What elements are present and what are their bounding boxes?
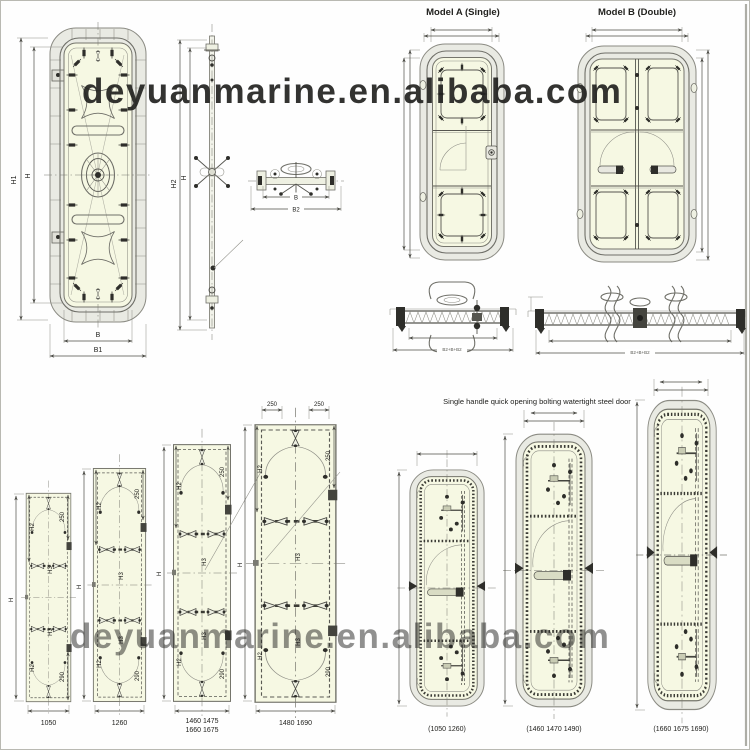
model-b-drawing: Model B (Double) bbox=[577, 7, 710, 262]
dim-h3-door2: H3 bbox=[119, 572, 125, 580]
dim-label-plan-b2: B2 bbox=[292, 208, 300, 214]
dim-h2-door2: H2 bbox=[97, 502, 103, 510]
model-b-title: Model B (Double) bbox=[598, 7, 676, 18]
width-label-qdoor1: (1050 1260) bbox=[428, 726, 466, 733]
width-label-door1: 1050 bbox=[41, 720, 57, 727]
section-double-dim-label: B2+B+B2 bbox=[630, 350, 650, 355]
size-door-1260 bbox=[87, 454, 151, 715]
dim-h-door2: H bbox=[77, 585, 83, 589]
dim-h2b-door1: H2 bbox=[30, 664, 36, 672]
dim-h3-door4: H3 bbox=[296, 553, 302, 561]
dim-250-door2: 250 bbox=[135, 488, 141, 499]
dim-h-door4: H bbox=[238, 563, 244, 567]
catalog-image: H1 H B B1 H2 H bbox=[0, 0, 750, 750]
dim-250-door4: 250 bbox=[326, 450, 332, 461]
size-door-1460 bbox=[167, 429, 237, 716]
dim-290-door3: 290 bbox=[220, 668, 226, 679]
quick-door-1 bbox=[397, 459, 496, 716]
dim-top-250a: 250 bbox=[267, 402, 278, 408]
watermark-bottom: deyuanmarine.en.alibaba.com bbox=[70, 617, 610, 656]
dim-label-plan-b: B bbox=[294, 196, 298, 202]
section-double-drawing: B2+B+B2 bbox=[528, 286, 746, 356]
dim-h2-door4: H2 bbox=[258, 465, 264, 473]
dim-290-door4: 290 bbox=[326, 666, 332, 677]
section-single-drawing: B2+B+B2 bbox=[390, 282, 516, 353]
dim-h3-door3: H3 bbox=[202, 558, 208, 566]
dim-h2b-door3: H2 bbox=[177, 658, 183, 666]
dim-label-h-side: H bbox=[181, 175, 188, 180]
quick-open-drawings: Single handle quick opening bolting wate… bbox=[397, 379, 728, 733]
dim-h-door3: H bbox=[157, 572, 163, 576]
size-chart-drawings: H H2 H2 H3 H3 250 290 H H2 H2 H3 H3 250 … bbox=[9, 402, 345, 734]
dim-250-door3: 250 bbox=[220, 466, 226, 477]
dim-h2-door3: H2 bbox=[177, 482, 183, 490]
dim-290-door2: 290 bbox=[135, 670, 141, 681]
dim-label-b1: B1 bbox=[94, 347, 103, 354]
section-single-dim-label: B2+B+B2 bbox=[442, 347, 462, 352]
drawing-sheet: H1 H B B1 H2 H bbox=[0, 0, 750, 750]
dim-label-h1: H1 bbox=[11, 175, 18, 184]
width-label-door3-line1: 1460 1475 bbox=[185, 718, 218, 725]
quick-door-2 bbox=[503, 422, 605, 719]
width-label-qdoor3: (1660 1675 1690) bbox=[653, 726, 708, 733]
dim-h3b-door1: H3 bbox=[48, 628, 54, 636]
dim-label-b: B bbox=[96, 332, 101, 339]
quick-door-3 bbox=[636, 387, 728, 724]
width-label-door2: 1260 bbox=[112, 720, 128, 727]
dim-250-door1: 250 bbox=[60, 511, 66, 522]
dim-290-door1: 290 bbox=[60, 671, 66, 682]
plan-view-drawing: B B2 bbox=[248, 162, 344, 214]
dim-label-h2: H2 bbox=[171, 179, 178, 188]
model-a-drawing: Model A (Single) bbox=[404, 7, 504, 260]
dim-h-door1: H bbox=[9, 598, 15, 602]
width-label-door4: 1480 1690 bbox=[279, 720, 312, 727]
quick-open-title: Single handle quick opening bolting wate… bbox=[443, 397, 631, 406]
dim-label-h: H bbox=[25, 173, 32, 178]
dim-h2-door1: H2 bbox=[30, 523, 36, 531]
watermark-top: deyuanmarine.en.alibaba.com bbox=[82, 72, 622, 111]
model-a-title: Model A (Single) bbox=[426, 7, 500, 18]
width-label-qdoor2: (1460 1470 1490) bbox=[526, 726, 581, 733]
dim-h2b-door2: H2 bbox=[97, 660, 103, 668]
width-label-door3-line2: 1660 1675 bbox=[185, 727, 218, 734]
dim-top-250b: 250 bbox=[314, 402, 325, 408]
dim-h3-door1: H3 bbox=[48, 566, 54, 574]
